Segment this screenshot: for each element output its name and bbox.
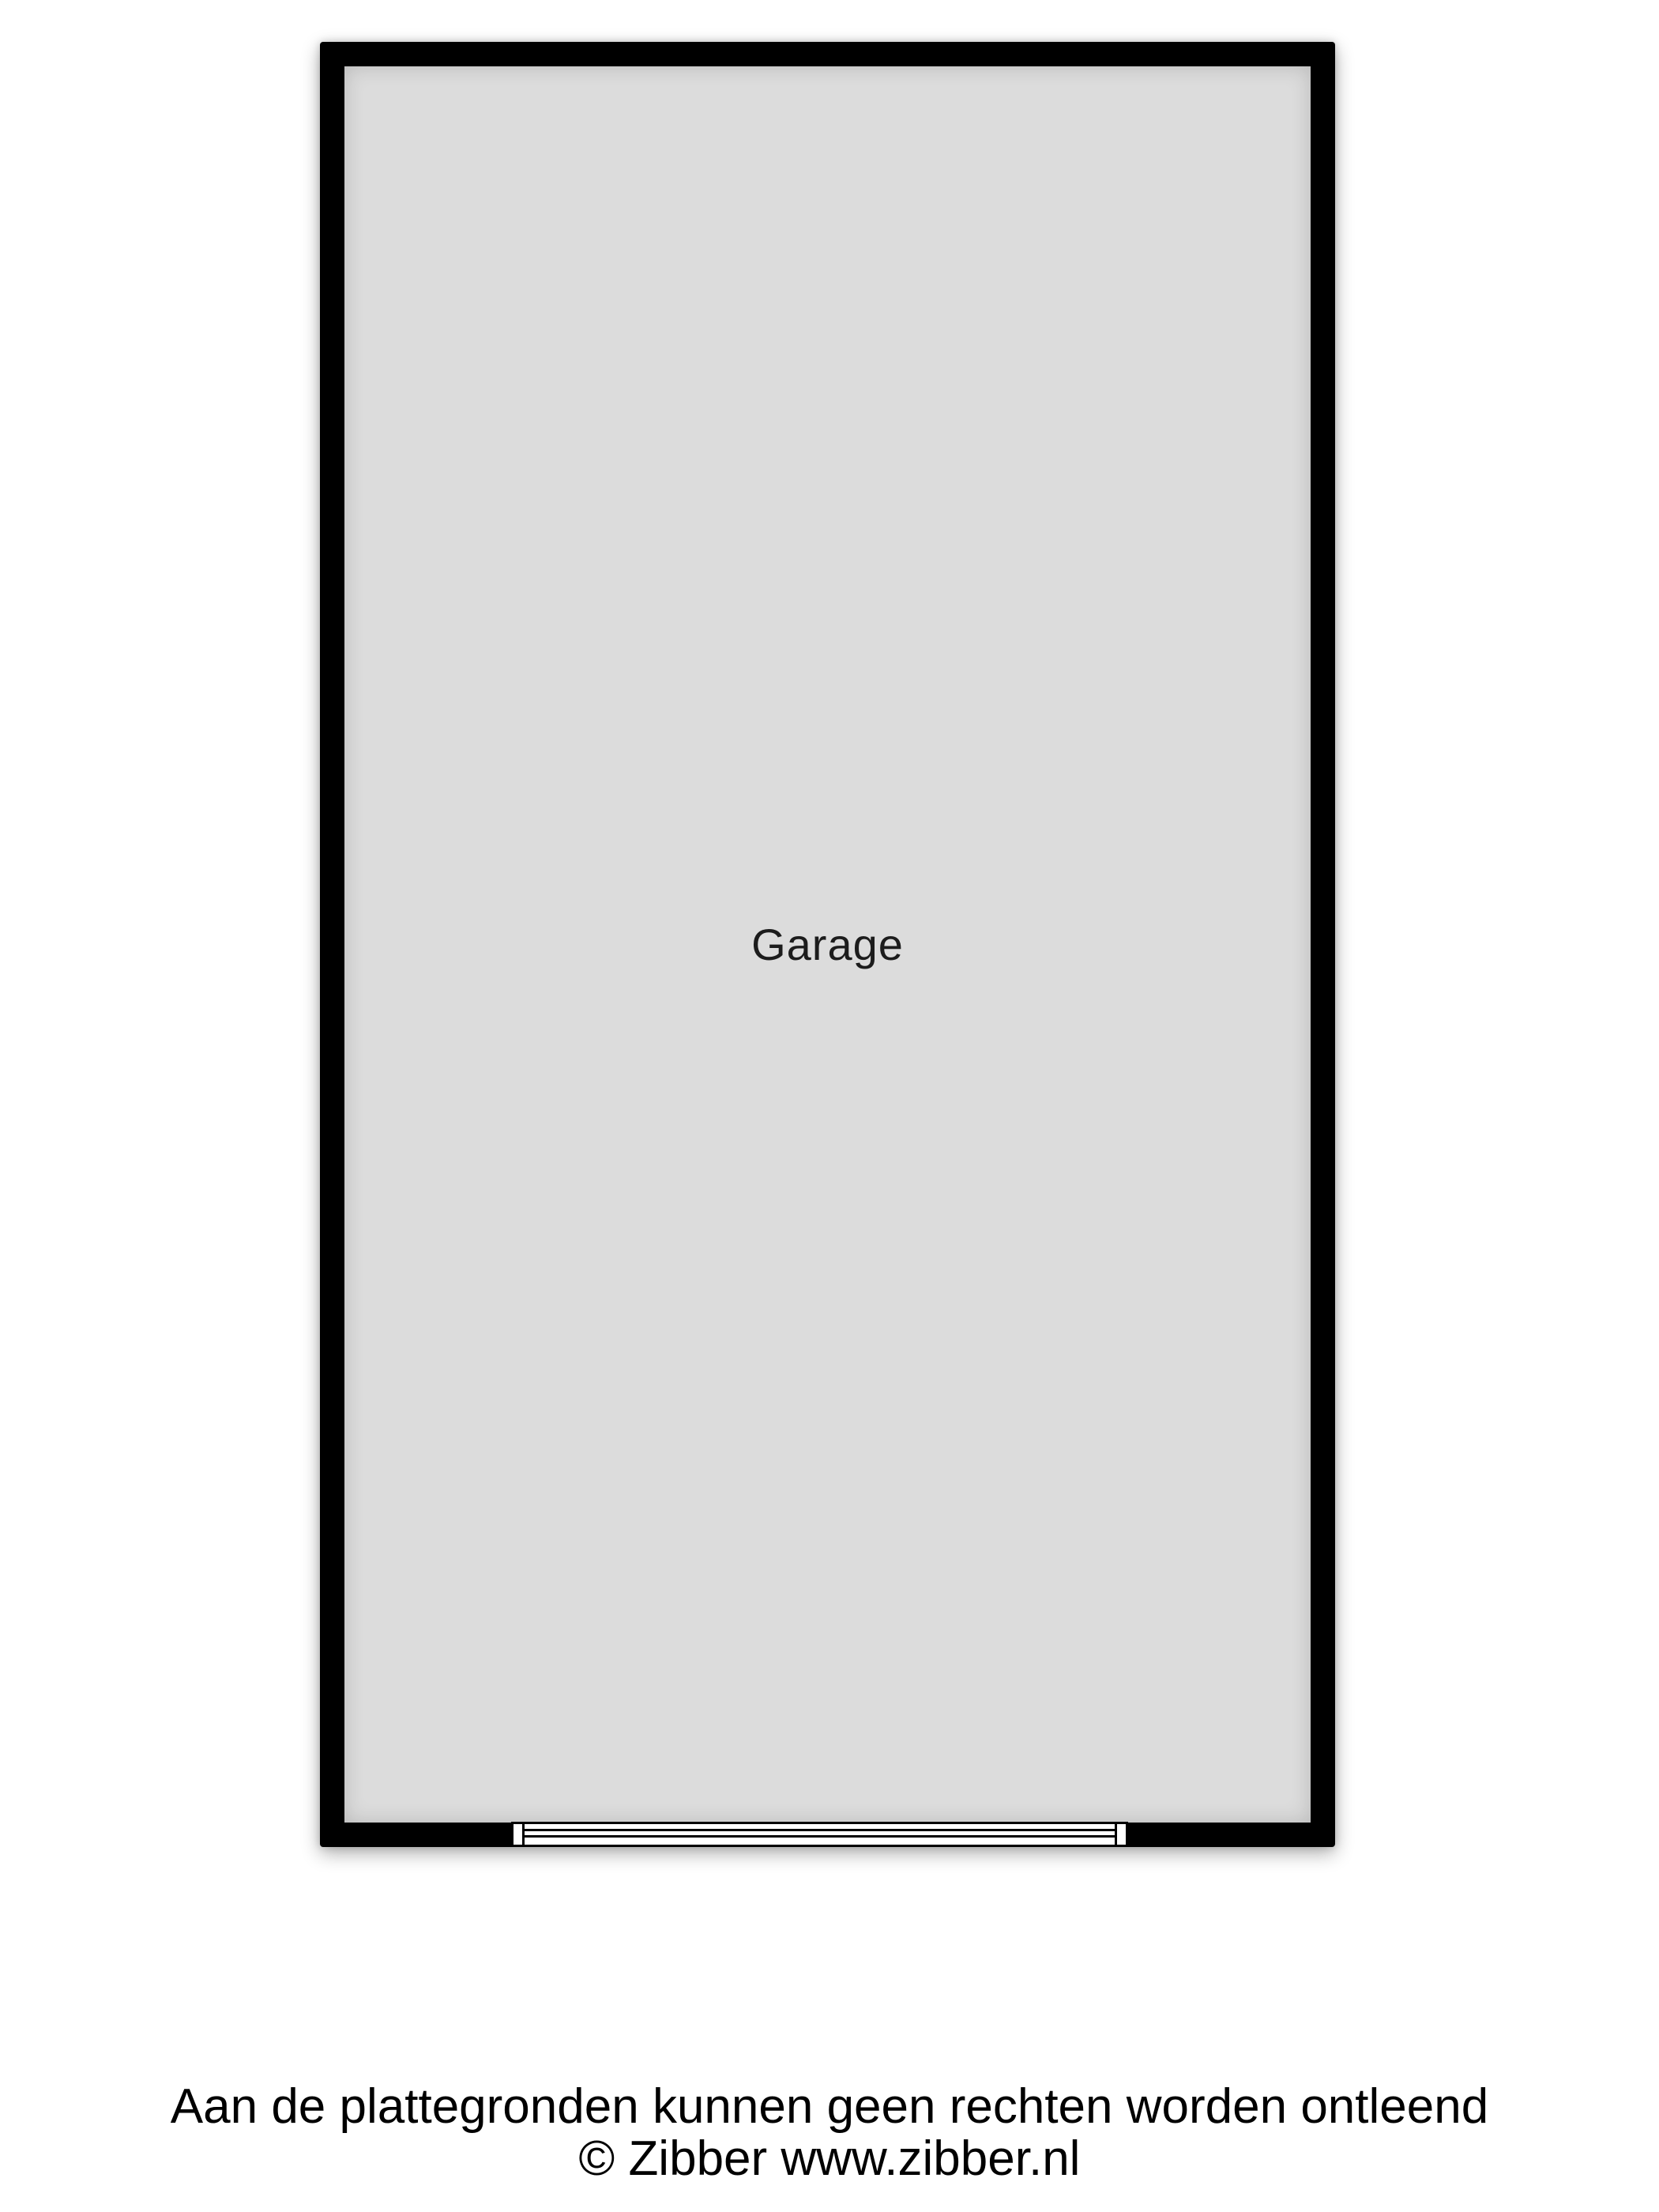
door-panel-line-2 [525, 1835, 1115, 1838]
room-label: Garage [751, 923, 904, 967]
garage-door-symbol [511, 1822, 1128, 1847]
floorplan-canvas: Garage [320, 42, 1335, 1847]
door-panel-line-1 [525, 1829, 1115, 1831]
page-background: Garage Aan de plattegronden kunnen geen … [0, 0, 1659, 2212]
door-track [522, 1824, 1117, 1845]
footer: Aan de plattegronden kunnen geen rechten… [0, 2081, 1659, 2185]
copyright-text: © Zibber www.zibber.nl [0, 2133, 1659, 2185]
garage-room: Garage [344, 66, 1311, 1823]
disclaimer-text: Aan de plattegronden kunnen geen rechten… [0, 2081, 1659, 2133]
